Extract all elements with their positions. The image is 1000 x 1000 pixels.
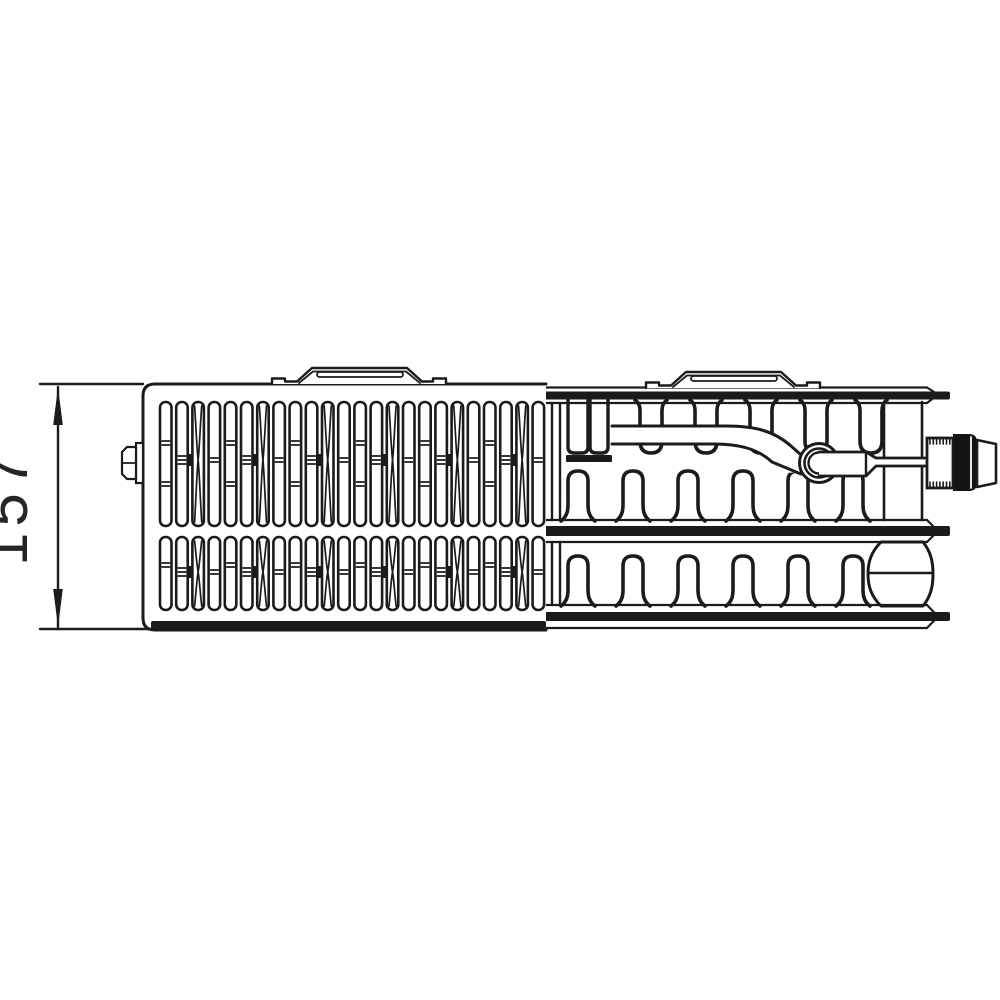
grille-slat [209, 402, 221, 526]
grille-slat [160, 402, 172, 526]
convector-fin [781, 556, 815, 606]
convector-fin [726, 556, 760, 606]
grille-slat [354, 402, 366, 526]
hanging-fin-end [590, 400, 608, 453]
dimension-arrow-up [53, 387, 63, 425]
drawing-canvas: 157 [0, 0, 1000, 1000]
convector-fin [616, 556, 650, 606]
dimension-arrow-down [53, 589, 63, 627]
hanging-fin [855, 400, 887, 453]
grille-slat [176, 537, 188, 610]
grille-slat [419, 537, 431, 610]
bracket-lens [317, 372, 403, 377]
convector-fin [726, 471, 760, 521]
grille-slat [225, 537, 237, 610]
band-thick-bar [541, 612, 950, 621]
convector-fin [671, 471, 705, 521]
grille-slat [371, 537, 383, 610]
convector-fin [671, 556, 705, 606]
grille-slat [403, 402, 415, 526]
convector-fin [561, 471, 595, 521]
convector-fin [836, 556, 870, 606]
grille-slat [225, 402, 237, 526]
grille-bottom-thick-edge [151, 621, 546, 629]
grille-slat [435, 537, 447, 610]
pipe-plate-bar [566, 455, 612, 462]
valve-knob [953, 434, 977, 491]
convector-fin [561, 556, 595, 606]
dimension-annotation: 157 [0, 384, 153, 629]
grille-slat [484, 402, 496, 526]
valve-thread-block [927, 438, 953, 488]
grille-slat [338, 402, 350, 526]
grille-slat [500, 537, 512, 610]
convector-fin [616, 471, 650, 521]
grille-slat [419, 402, 431, 526]
grille-panel [143, 384, 546, 630]
grille-slat [290, 402, 302, 526]
convector-fin [836, 471, 870, 521]
dimension-label: 157 [0, 448, 40, 566]
side-plug-fitting [122, 443, 143, 483]
grille-slat [290, 537, 302, 610]
band-thick-bar [541, 526, 950, 536]
grille-slat [241, 537, 253, 610]
bracket-lens [691, 376, 777, 381]
grille-slat [306, 537, 318, 610]
radiator-top-view-drawing: 157 [0, 0, 1000, 1000]
band-thick-bar [541, 392, 950, 400]
convector-section [541, 388, 950, 629]
hanging-fin-end [568, 400, 588, 453]
grille-slat [484, 537, 496, 610]
grille-slat [468, 402, 480, 526]
grille-slat [160, 537, 172, 610]
grille-slat [533, 402, 545, 526]
grille-slat [354, 537, 366, 610]
grille-slat [273, 402, 285, 526]
valve-cap [977, 440, 996, 487]
